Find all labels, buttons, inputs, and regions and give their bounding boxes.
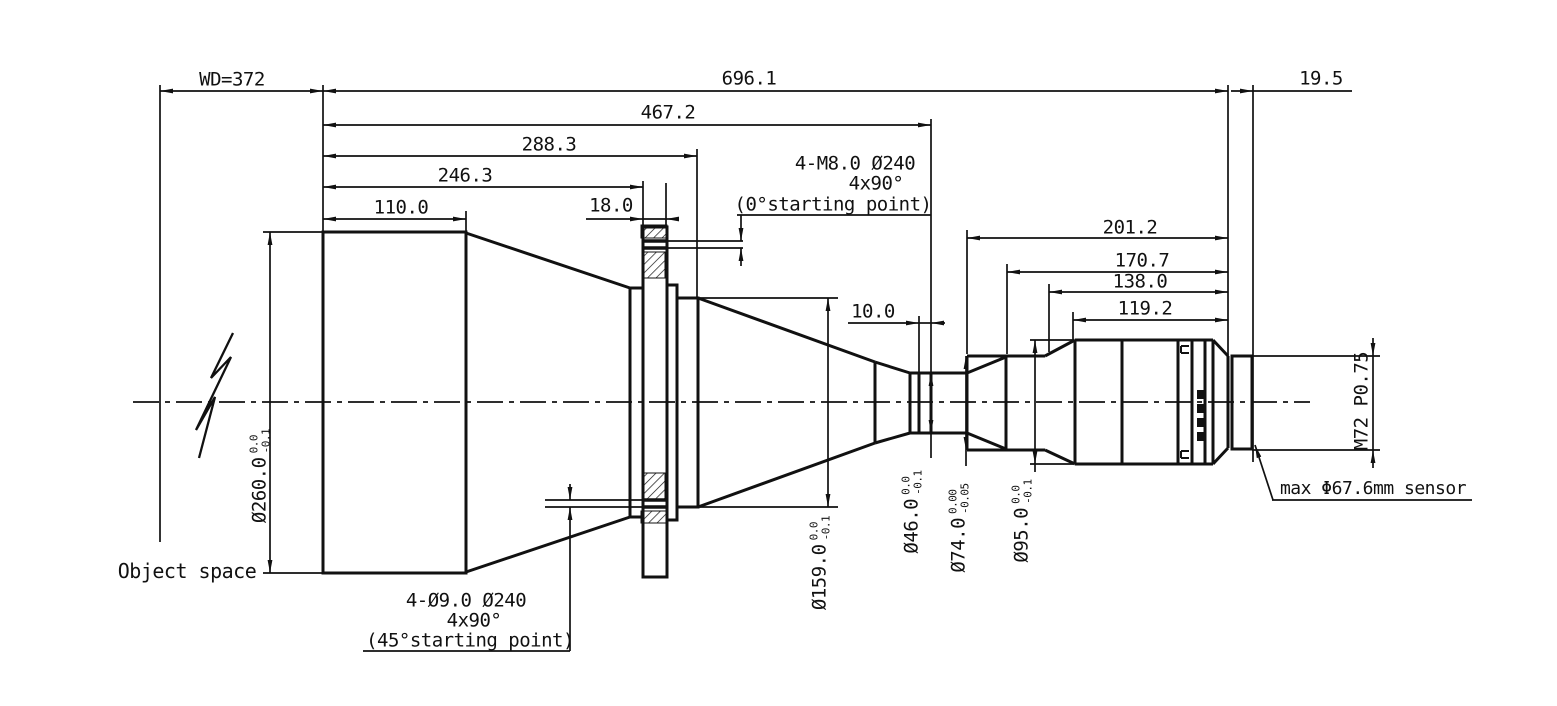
- dim-label-246: 246.3: [438, 167, 493, 186]
- dim-label-119: 119.2: [1118, 300, 1173, 319]
- dim-label-288: 288.3: [522, 136, 577, 155]
- note-phi9-line3: (45°starting point): [366, 632, 574, 651]
- flange-hole-sections: [641, 225, 667, 523]
- dim-label-18: 18.0: [589, 197, 633, 216]
- dim-label-467: 467.2: [641, 104, 696, 123]
- tolerance-46: 0.0-0.1: [900, 470, 923, 495]
- sensor-leader: [1255, 445, 1273, 500]
- m8-hole-outline: [667, 241, 743, 248]
- dia-label-46: Ø46.00.0-0.1: [900, 470, 923, 553]
- note-phi9-line2: 4x90°: [447, 612, 502, 631]
- dim-label-10: 10.0: [851, 303, 895, 322]
- thread-label-m72: M72 P0.75: [1353, 352, 1372, 450]
- dimension-lines: [160, 91, 1373, 573]
- object-space-label: Object space: [118, 561, 257, 581]
- dim-label-138: 138.0: [1113, 273, 1168, 292]
- dim-label-wd: WD=372: [199, 71, 265, 90]
- reference-lines: [133, 85, 1380, 573]
- drawing-linework: [0, 0, 1557, 706]
- m8-hole-hatch: [644, 252, 665, 278]
- phi74-chamfer: [967, 357, 1006, 449]
- dia-label-74: Ø74.00.00-0.05: [947, 483, 970, 572]
- dim-label-19: 19.5: [1299, 70, 1343, 89]
- m8-hole-walls: [643, 241, 667, 248]
- phi9-hole-walls: [643, 500, 667, 507]
- dia-label-159: Ø159.00.0-0.1: [808, 516, 831, 610]
- tolerance-260: 0.0-0.1: [248, 429, 271, 454]
- phi9-hole-hatch: [644, 473, 665, 500]
- dia-label-260: Ø260.00.0-0.1: [248, 429, 271, 523]
- groove-lines: [919, 373, 931, 433]
- tolerance-159: 0.0-0.1: [808, 516, 831, 541]
- note-phi9-line1: 4-Ø9.0 Ø240: [406, 592, 526, 611]
- dim-label-170: 170.7: [1115, 252, 1170, 271]
- dia-label-95: Ø95.00.0-0.1: [1010, 479, 1033, 562]
- note-m8-line2: 4x90°: [849, 175, 904, 194]
- tolerance-95: 0.0-0.1: [1010, 479, 1033, 504]
- phi74-section: [967, 356, 1045, 450]
- lens-technical-drawing: WD=372 696.1 19.5 467.2 288.3 246.3 110.…: [0, 0, 1557, 706]
- phi9-hole-outline: [545, 500, 643, 507]
- dim-label-110: 110.0: [374, 199, 429, 218]
- break-zigzag: [196, 333, 233, 458]
- sensor-note-label: max Φ67.6mm sensor: [1280, 480, 1466, 498]
- tolerance-74: 0.00-0.05: [947, 483, 970, 514]
- dim-label-201: 201.2: [1103, 219, 1158, 238]
- note-m8-line3: (0°starting point): [735, 196, 932, 215]
- note-m8-line1: 4-M8.0 Ø240: [795, 155, 915, 174]
- dim-label-696: 696.1: [722, 70, 777, 89]
